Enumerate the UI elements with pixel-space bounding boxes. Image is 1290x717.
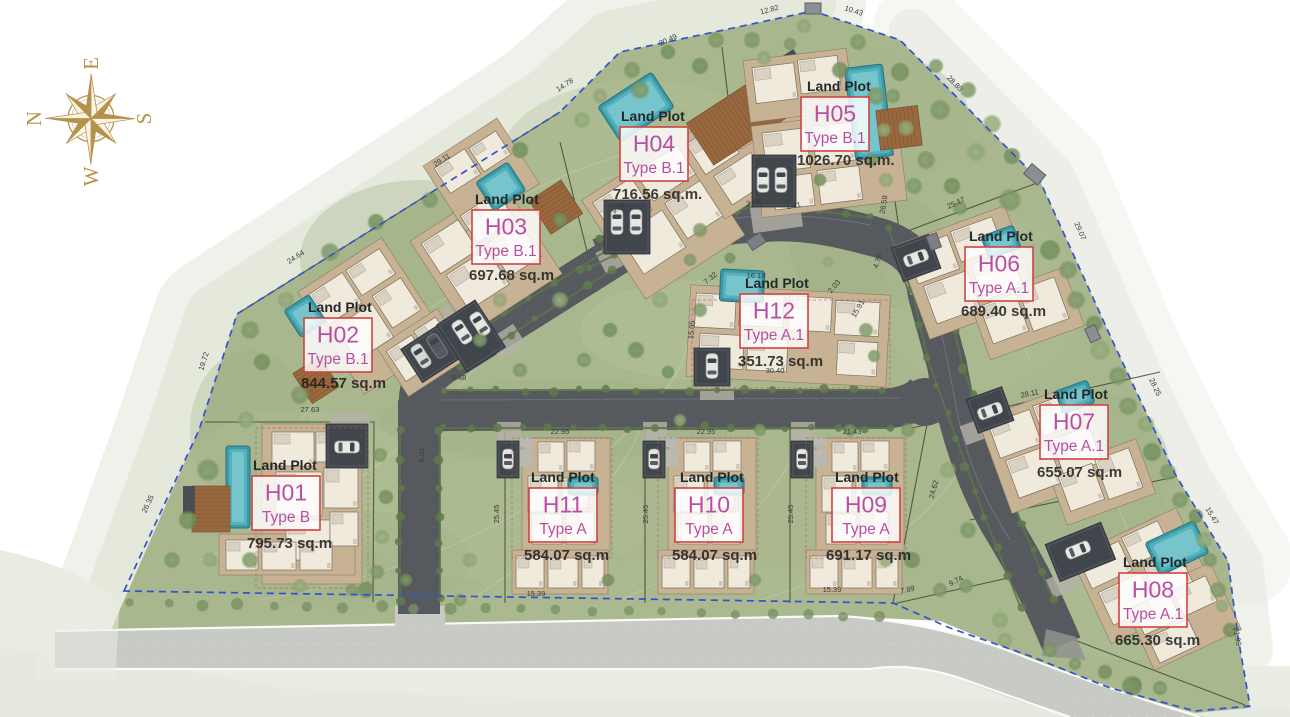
svg-text:22.95: 22.95 xyxy=(551,427,570,436)
svg-text:697.68 sq.m: 697.68 sq.m xyxy=(469,267,554,284)
svg-text:H09: H09 xyxy=(845,492,887,518)
svg-text:H01: H01 xyxy=(265,480,307,506)
svg-text:H10: H10 xyxy=(688,492,730,518)
svg-text:6.01: 6.01 xyxy=(417,448,426,463)
svg-text:665.30 sq.m: 665.30 sq.m xyxy=(1115,632,1200,649)
svg-text:22.95: 22.95 xyxy=(697,427,716,436)
svg-text:Land Plot: Land Plot xyxy=(745,275,809,291)
svg-text:15.39: 15.39 xyxy=(823,585,842,594)
svg-text:Land Plot: Land Plot xyxy=(807,78,871,94)
svg-text:Land Plot: Land Plot xyxy=(475,191,539,207)
svg-text:H11: H11 xyxy=(543,492,584,518)
svg-text:Type A.1: Type A.1 xyxy=(1123,606,1183,623)
svg-text:21.43: 21.43 xyxy=(843,427,862,436)
svg-text:Type A: Type A xyxy=(842,521,890,538)
svg-text:25.45: 25.45 xyxy=(786,505,795,524)
svg-text:Type B.1: Type B.1 xyxy=(475,243,536,260)
svg-text:Land Plot: Land Plot xyxy=(621,108,685,124)
svg-text:584.07 sq.m: 584.07 sq.m xyxy=(524,547,609,564)
svg-text:5.48: 5.48 xyxy=(452,373,467,382)
svg-text:844.57 sq.m: 844.57 sq.m xyxy=(301,375,386,392)
svg-text:Type B: Type B xyxy=(262,509,310,526)
svg-text:691.17 sq.m: 691.17 sq.m xyxy=(826,547,911,564)
svg-text:H03: H03 xyxy=(485,214,527,240)
svg-text:Type B.1: Type B.1 xyxy=(623,160,684,177)
svg-text:689.40 sq.m: 689.40 sq.m xyxy=(961,303,1046,320)
svg-text:Land Plot: Land Plot xyxy=(969,228,1033,244)
svg-text:25.45: 25.45 xyxy=(641,505,650,524)
svg-text:Land Plot: Land Plot xyxy=(1123,554,1187,570)
svg-text:25.45: 25.45 xyxy=(492,505,501,524)
svg-text:15.39: 15.39 xyxy=(527,589,546,598)
svg-text:Type A.1: Type A.1 xyxy=(1044,438,1104,455)
svg-text:Type B.1: Type B.1 xyxy=(307,351,368,368)
svg-text:15.05: 15.05 xyxy=(686,320,697,339)
svg-text:584.07 sq.m: 584.07 sq.m xyxy=(672,547,757,564)
svg-text:655.07 sq.m: 655.07 sq.m xyxy=(1037,464,1122,481)
svg-text:27.63: 27.63 xyxy=(301,405,320,414)
svg-text:Type A: Type A xyxy=(539,521,587,538)
svg-text:S: S xyxy=(132,113,156,125)
svg-text:W: W xyxy=(79,166,103,186)
svg-text:Type B.1: Type B.1 xyxy=(804,130,865,147)
svg-text:Land Plot: Land Plot xyxy=(531,469,595,485)
svg-text:H04: H04 xyxy=(633,131,675,157)
svg-text:716.56 sq.m.: 716.56 sq.m. xyxy=(613,186,702,203)
svg-text:Type A.1: Type A.1 xyxy=(744,327,804,344)
svg-text:H06: H06 xyxy=(978,251,1020,277)
svg-text:Type A: Type A xyxy=(685,521,733,538)
svg-text:Land Plot: Land Plot xyxy=(253,457,317,473)
svg-text:N: N xyxy=(22,111,46,126)
svg-text:Land Plot: Land Plot xyxy=(835,469,899,485)
svg-text:E: E xyxy=(79,57,103,70)
svg-text:H02: H02 xyxy=(317,322,359,348)
svg-text:1026.70 sq.m.: 1026.70 sq.m. xyxy=(797,152,895,169)
svg-text:Land Plot: Land Plot xyxy=(680,469,744,485)
svg-text:Land Plot: Land Plot xyxy=(308,299,372,315)
svg-text:795.73 sq.m: 795.73 sq.m xyxy=(247,535,332,552)
svg-text:H08: H08 xyxy=(1132,577,1174,603)
svg-text:H05: H05 xyxy=(814,101,856,127)
svg-text:H07: H07 xyxy=(1053,409,1095,435)
svg-text:351.73 sq.m: 351.73 sq.m xyxy=(738,353,823,370)
svg-text:Type A.1: Type A.1 xyxy=(969,280,1029,297)
svg-text:H12: H12 xyxy=(753,298,795,324)
svg-text:Land Plot: Land Plot xyxy=(1044,386,1108,402)
